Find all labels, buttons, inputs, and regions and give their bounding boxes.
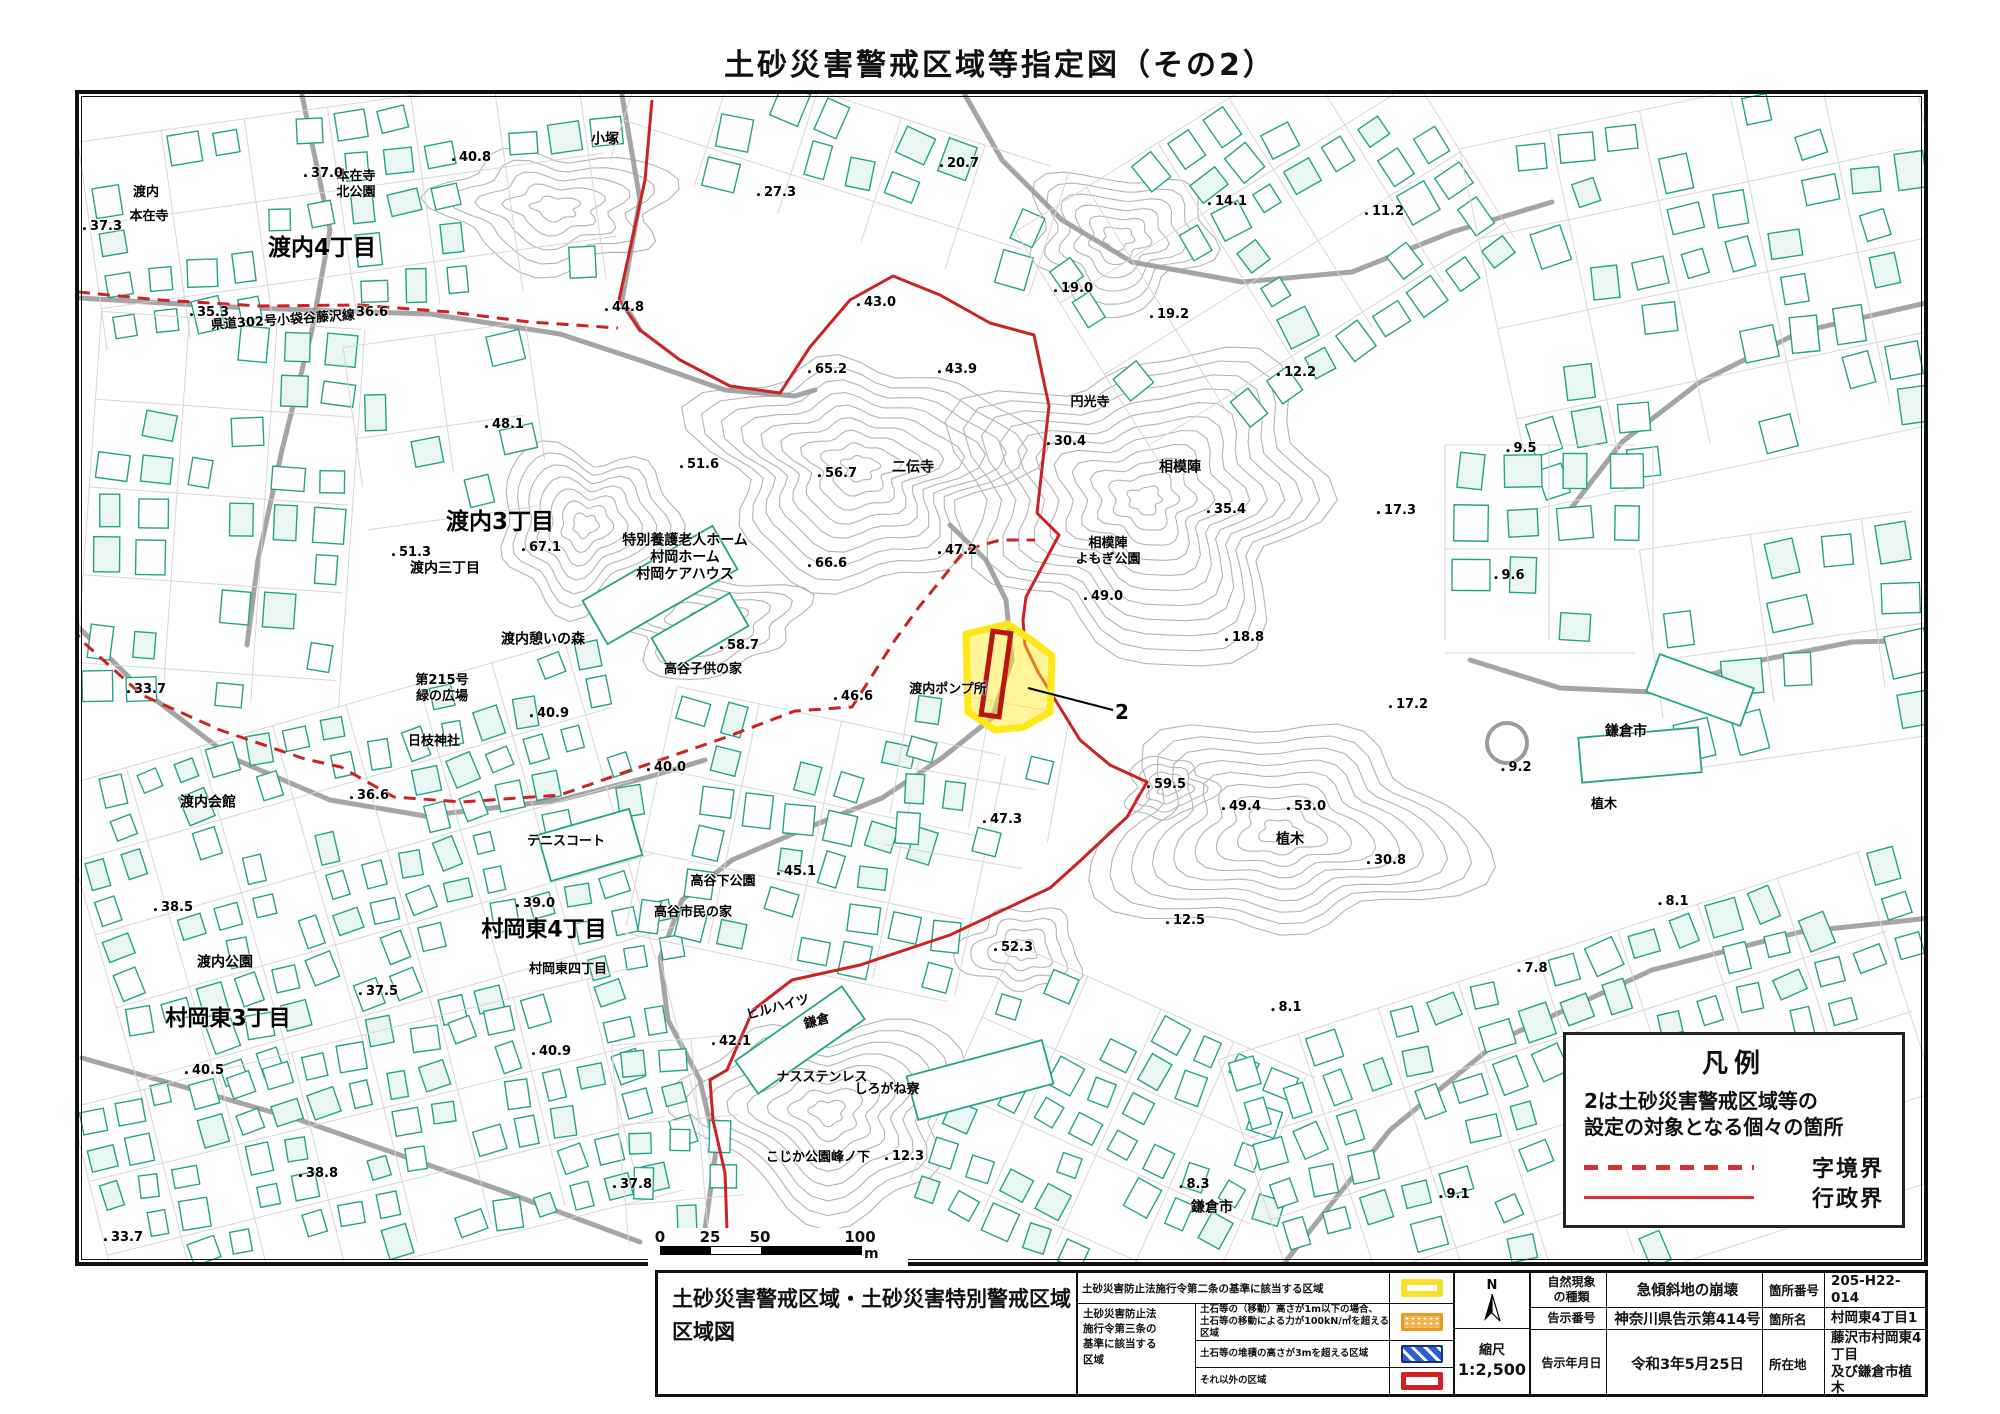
blue-zone-symbol — [1401, 1345, 1443, 1363]
legend-note: 2は土砂災害警戒区域等の 設定の対象となる個々の箇所 — [1584, 1088, 1884, 1140]
legend-row-dashed: 字境界 — [1584, 1152, 1884, 1182]
place-label: 渡内公園 — [197, 954, 253, 971]
elevation-label: 44.8 — [612, 300, 644, 316]
elevation-label: 37.5 — [366, 984, 398, 1000]
elevation-label: 53.0 — [1294, 799, 1326, 815]
elevation-label: 49.0 — [1091, 589, 1123, 605]
north-arrow-icon — [1481, 1293, 1503, 1323]
elevation-label: 18.8 — [1232, 630, 1264, 646]
place-label: 鎌倉市 — [1191, 1199, 1233, 1216]
elevation-label: 19.2 — [1157, 307, 1189, 323]
scale-tick-100: 100 — [844, 1228, 875, 1246]
scale-tick-50: 50 — [750, 1228, 771, 1246]
table-row: 自然現象 の種類 急傾斜地の崩壊 箇所番号 205-H22-014 — [1531, 1273, 1925, 1308]
place-label: 高谷市民の家 — [654, 905, 732, 921]
elevation-label: 9.5 — [1513, 441, 1536, 457]
dashed-boundary-swatch — [1584, 1165, 1754, 1170]
elevation-label: 66.6 — [815, 556, 847, 572]
place-label: 二伝寺 — [892, 459, 934, 476]
phenomenon-value: 急傾斜地の崩壊 — [1607, 1273, 1763, 1307]
site-name-value: 村岡東4丁目1 — [1825, 1308, 1925, 1329]
elevation-label: 43.9 — [945, 362, 977, 378]
place-label: 円光寺 — [1070, 395, 1109, 411]
place-label: 高谷下公園 — [690, 874, 755, 890]
scale-tick-0: 0 — [655, 1228, 665, 1246]
notice-number-value: 神奈川県告示第414号 — [1607, 1308, 1763, 1329]
elevation-label: 9.6 — [1501, 568, 1524, 584]
place-label: 2 — [1115, 700, 1129, 724]
scale-tick-25: 25 — [700, 1228, 721, 1246]
notice-date-label: 告示年月日 — [1531, 1330, 1607, 1398]
site-name-label: 箇所名 — [1763, 1308, 1825, 1329]
place-label: 村岡東四丁目 — [529, 962, 607, 978]
elevation-label: 40.9 — [539, 1044, 571, 1060]
elevation-label: 35.4 — [1214, 502, 1246, 518]
elevation-label: 17.3 — [1384, 503, 1416, 519]
scale-label: 縮尺 — [1479, 1343, 1505, 1360]
legend-row-solid: 行政界 — [1584, 1182, 1884, 1212]
place-label: 渡内3丁目 — [446, 508, 554, 536]
phenomenon-label: 自然現象 の種類 — [1531, 1273, 1607, 1307]
zone-legend-table: 土砂災害防止法施行令第二条の基準に該当する区域 土砂災害防止法 施行令第三条の … — [1078, 1273, 1455, 1394]
elevation-label: 11.2 — [1372, 204, 1404, 220]
elevation-label: 46.6 — [841, 689, 873, 705]
elevation-label: 67.1 — [529, 540, 561, 556]
place-label: 植木 — [1276, 831, 1304, 848]
scale-bar: 0 25 50 100 m — [648, 1228, 908, 1266]
place-label: 渡内憩いの森 — [501, 631, 585, 648]
elevation-label: 40.0 — [654, 760, 686, 776]
elevation-label: 65.2 — [815, 362, 847, 378]
place-label: 県道302号小袋谷藤沢線 — [211, 308, 356, 334]
elevation-label: 20.7 — [947, 156, 979, 172]
hazard-map-page: 土砂災害警戒区域等指定図（その2） 小塚渡内本在寺本在寺 北公園渡内4丁目県道3… — [0, 0, 2000, 1414]
elevation-label: 47.2 — [945, 543, 977, 559]
map-sheet-title: 土砂災害警戒区域・土砂災害特別警戒区域 区域図 — [658, 1273, 1078, 1394]
elevation-label: 19.0 — [1061, 281, 1093, 297]
elevation-label: 37.3 — [90, 219, 122, 235]
notice-number-label: 告示番号 — [1531, 1308, 1607, 1329]
map-sheet-title-line2: 区域図 — [672, 1316, 1076, 1349]
elevation-label: 12.5 — [1173, 913, 1205, 929]
location-value: 藤沢市村岡東4丁目 及び鎌倉市植木 — [1825, 1330, 1925, 1398]
elevation-label: 40.5 — [192, 1063, 224, 1079]
place-label: 相模陣 よもぎ公園 — [1075, 536, 1140, 568]
elevation-label: 33.7 — [134, 682, 166, 698]
elevation-label: 7.8 — [1524, 961, 1547, 977]
elevation-label: 8.3 — [1186, 1177, 1209, 1193]
place-label: 高谷子供の家 — [664, 662, 742, 678]
place-label: 日枝神社 — [408, 734, 460, 750]
place-label: 渡内三丁目 — [410, 560, 480, 577]
solid-boundary-swatch — [1584, 1196, 1754, 1199]
zone-article2-text: 土砂災害防止法施行令第二条の基準に該当する区域 — [1078, 1273, 1389, 1303]
zone-row-article2: 土砂災害防止法施行令第二条の基準に該当する区域 — [1078, 1273, 1453, 1304]
place-label: 村岡東3丁目 — [165, 1007, 290, 1034]
place-label: しろがね寮 — [854, 1082, 919, 1098]
table-row: 告示番号 神奈川県告示第414号 箇所名 村岡東4丁目1 — [1531, 1308, 1925, 1330]
legend-title: 凡例 — [1584, 1043, 1884, 1080]
scale-bar-bar — [660, 1246, 862, 1255]
orange-zone-symbol — [1401, 1313, 1443, 1331]
elevation-label: 12.2 — [1284, 365, 1316, 381]
elevation-label: 36.6 — [357, 788, 389, 804]
site-number-label: 箇所番号 — [1763, 1273, 1825, 1307]
elevation-label: 51.6 — [687, 457, 719, 473]
elevation-label: 37.8 — [620, 1177, 652, 1193]
location-label: 所在地 — [1763, 1330, 1825, 1398]
place-label: 第215号 緑の広場 — [415, 673, 468, 705]
elevation-label: 8.1 — [1278, 1000, 1301, 1016]
place-label: 村岡東4丁目 — [481, 918, 606, 945]
zone-row-debris-height: 土石等の堆積の高さが3mを超える区域 — [1196, 1341, 1453, 1368]
elevation-label: 30.4 — [1054, 434, 1086, 450]
elevation-label: 9.1 — [1446, 1187, 1469, 1203]
place-label: 渡内4丁目 — [268, 234, 376, 262]
elevation-label: 52.3 — [1001, 940, 1033, 956]
site-number-value: 205-H22-014 — [1825, 1273, 1925, 1307]
place-label: 植木 — [1591, 797, 1617, 813]
elevation-label: 59.5 — [1154, 777, 1186, 793]
elevation-label: 51.3 — [399, 545, 431, 561]
page-title: 土砂災害警戒区域等指定図（その2） — [0, 40, 2000, 84]
place-label: 特別養護老人ホーム 村岡ホーム 村岡ケアハウス — [622, 532, 748, 583]
elevation-label: 42.1 — [719, 1034, 751, 1050]
elevation-label: 49.4 — [1229, 799, 1261, 815]
place-label: テニスコート — [527, 834, 605, 850]
elevation-label: 27.3 — [764, 185, 796, 201]
elevation-label: 9.2 — [1508, 760, 1531, 776]
solid-boundary-label: 行政界 — [1754, 1181, 1884, 1213]
zone-article3-label: 土砂災害防止法 施行令第三条の 基準に該当する 区域 — [1078, 1304, 1196, 1394]
compass-n-label: N — [1487, 1278, 1498, 1293]
elevation-label: 40.8 — [459, 150, 491, 166]
elevation-label: 33.7 — [111, 1230, 143, 1246]
place-label: 渡内 — [133, 185, 159, 201]
north-compass: N — [1455, 1273, 1529, 1329]
elevation-label: 14.1 — [1215, 194, 1247, 210]
place-label: 鎌倉市 — [1605, 723, 1647, 740]
notice-date-value: 令和3年5月25日 — [1607, 1330, 1763, 1398]
elevation-label: 43.0 — [864, 295, 896, 311]
elevation-label: 45.1 — [784, 864, 816, 880]
red-zone-symbol — [1401, 1372, 1443, 1390]
place-label: ヒルハイツ — [745, 992, 812, 1024]
place-label: 渡内会館 — [180, 794, 236, 811]
elevation-label: 8.1 — [1665, 894, 1688, 910]
elevation-label: 17.2 — [1396, 697, 1428, 713]
elevation-label: 12.3 — [892, 1149, 924, 1165]
dashed-boundary-label: 字境界 — [1754, 1151, 1884, 1183]
elevation-label: 30.8 — [1374, 853, 1406, 869]
zone-row-debris-force: 土石等の（移動）高さが1m以下の場合、 土石等の移動による力が100kN/㎡を超… — [1196, 1304, 1453, 1341]
elevation-label: 56.7 — [825, 466, 857, 482]
place-label: 渡内ポンプ所 — [909, 682, 987, 698]
scale-cell: 縮尺 1:2,500 — [1455, 1329, 1529, 1394]
place-label: 相模陣 — [1159, 459, 1201, 476]
elevation-label: 35.3 — [197, 305, 229, 321]
scale-bar-ticks: 0 25 50 100 — [648, 1228, 908, 1246]
table-row: 告示年月日 令和3年5月25日 所在地 藤沢市村岡東4丁目 及び鎌倉市植木 — [1531, 1330, 1925, 1398]
elevation-label: 36.6 — [356, 305, 388, 321]
map-sheet-title-line1: 土砂災害警戒区域・土砂災害特別警戒区域 — [672, 1283, 1076, 1316]
designation-details-table: 自然現象 の種類 急傾斜地の崩壊 箇所番号 205-H22-014 告示番号 神… — [1531, 1273, 1925, 1394]
elevation-label: 48.1 — [492, 417, 524, 433]
place-label: 鎌倉 — [802, 1011, 831, 1033]
place-label: 小塚 — [591, 131, 619, 148]
elevation-label: 38.5 — [161, 900, 193, 916]
scale-bar-segment — [661, 1247, 711, 1254]
scale-value: 1:2,500 — [1458, 1360, 1526, 1381]
place-label: こじか公園峰ノ下 — [766, 1150, 870, 1166]
elevation-label: 40.9 — [537, 706, 569, 722]
scale-bar-unit: m — [864, 1246, 879, 1262]
elevation-label: 38.8 — [306, 1166, 338, 1182]
elevation-label: 39.0 — [523, 896, 555, 912]
zone-row-other: それ以外の区域 — [1196, 1368, 1453, 1394]
scale-bar-segment — [761, 1247, 861, 1254]
elevation-label: 58.7 — [727, 638, 759, 654]
place-label: 本在寺 — [129, 209, 168, 225]
info-table: 土砂災害警戒区域・土砂災害特別警戒区域 区域図 土砂災害防止法施行令第二条の基準… — [655, 1270, 1928, 1397]
legend-box: 凡例 2は土砂災害警戒区域等の 設定の対象となる個々の箇所 字境界 行政界 — [1563, 1032, 1905, 1228]
elevation-label: 47.3 — [990, 812, 1022, 828]
elevation-label: 37.0 — [311, 166, 343, 182]
yellow-zone-symbol — [1401, 1279, 1443, 1297]
